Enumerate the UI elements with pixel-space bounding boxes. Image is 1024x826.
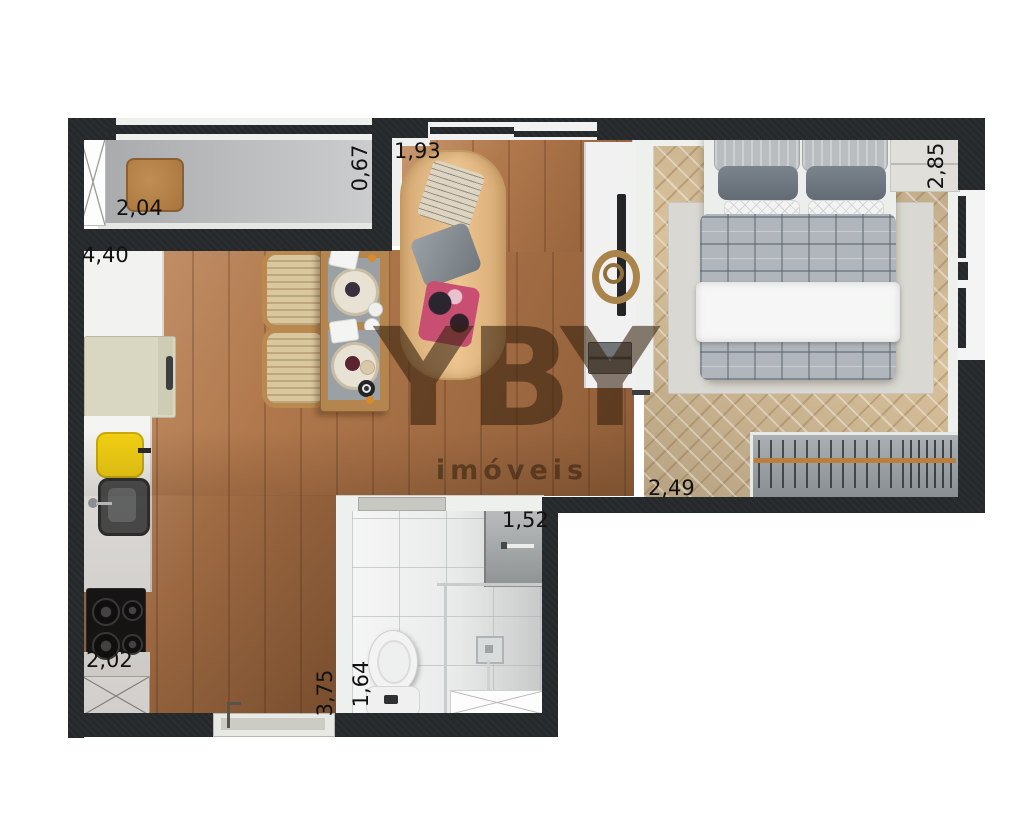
stove-burner-2 — [122, 600, 143, 621]
dim-bathroom-width: 1,52 — [502, 508, 549, 532]
bedroom-window-pane-2 — [958, 288, 966, 348]
dim-living-window: 1,93 — [394, 139, 441, 163]
kettle — [96, 432, 144, 478]
av-device — [588, 342, 632, 374]
bed-blanket — [696, 282, 900, 342]
napkin-2 — [329, 318, 360, 344]
wardrobe-rail — [754, 458, 956, 463]
balcony-bottom-wall — [84, 229, 392, 251]
garnish-1 — [368, 254, 376, 262]
vanity-faucet-tip — [501, 542, 507, 549]
decor-wreath-inner — [603, 263, 624, 284]
coffee-mug — [358, 380, 375, 397]
cream-cup — [360, 360, 375, 375]
top-wall-left-of-window — [372, 118, 428, 138]
toilet-flush-button — [384, 695, 398, 704]
right-wall-lower — [958, 360, 985, 513]
kitchen-sink-basin — [108, 488, 136, 522]
food-2 — [345, 356, 360, 371]
top-wall — [597, 118, 985, 140]
dim-balcony-recess: 0,67 — [348, 145, 372, 192]
kettle-spout — [138, 448, 151, 453]
bed-pillow-dark-right — [806, 166, 886, 200]
living-window-pane-2 — [514, 131, 600, 137]
garnish-2 — [366, 396, 374, 404]
dim-bathroom-depth: 1,64 — [349, 661, 373, 708]
entry-door-threshold-inner — [221, 718, 325, 730]
bedroom-window-handle — [958, 262, 968, 280]
shower-head-center — [485, 645, 493, 653]
entry-door-leaf-v — [227, 702, 230, 728]
kitchen-cabinet-projection — [82, 676, 150, 716]
bathroom-right-wall — [542, 513, 558, 733]
living-window-lintel — [428, 118, 598, 122]
dim-living-width: 4,40 — [82, 243, 129, 267]
dining-chair-2 — [262, 328, 328, 408]
living-window-pane-1 — [430, 127, 514, 134]
stove-burner-1 — [92, 598, 120, 626]
wardrobe-hangers — [758, 440, 904, 488]
right-wall-upper — [958, 140, 985, 190]
shower-glass-horizontal — [437, 583, 543, 586]
bedroom-door-hinge — [632, 390, 650, 395]
dim-bedroom-depth: 2,85 — [924, 143, 948, 190]
dim-balcony-width: 2,04 — [116, 196, 163, 220]
sofa-pillow-pink — [417, 280, 481, 348]
balcony-guardrail — [106, 125, 378, 134]
left-wall — [68, 118, 84, 738]
toilet-seat — [377, 640, 411, 684]
bedroom-bottom-wall — [542, 497, 985, 513]
kitchen-faucet-stem — [96, 502, 112, 505]
cup-1 — [368, 302, 383, 317]
shower-glass-vertical — [444, 586, 447, 713]
bedroom-window-pane-1 — [958, 196, 966, 258]
fridge-handle — [166, 356, 173, 390]
shower-pipe — [487, 660, 490, 693]
floor-plan: YBY imóveis 2,04 4,40 0,67 1,93 2,85 2,4… — [0, 0, 1024, 826]
shower-tray — [450, 690, 544, 715]
dim-living-depth: 3,75 — [313, 670, 337, 717]
dining-chair-1 — [262, 250, 328, 330]
food-1 — [345, 282, 360, 297]
vanity-faucet — [504, 544, 534, 548]
bathroom-door-threshold — [358, 497, 446, 511]
dim-bedroom-width: 2,49 — [648, 476, 695, 500]
dim-kitchen-wall: 2,02 — [86, 648, 133, 672]
entry-door-leaf-h — [227, 702, 241, 705]
wardrobe-hangers-right — [910, 440, 954, 488]
bed-pillow-dark-left — [718, 166, 798, 200]
